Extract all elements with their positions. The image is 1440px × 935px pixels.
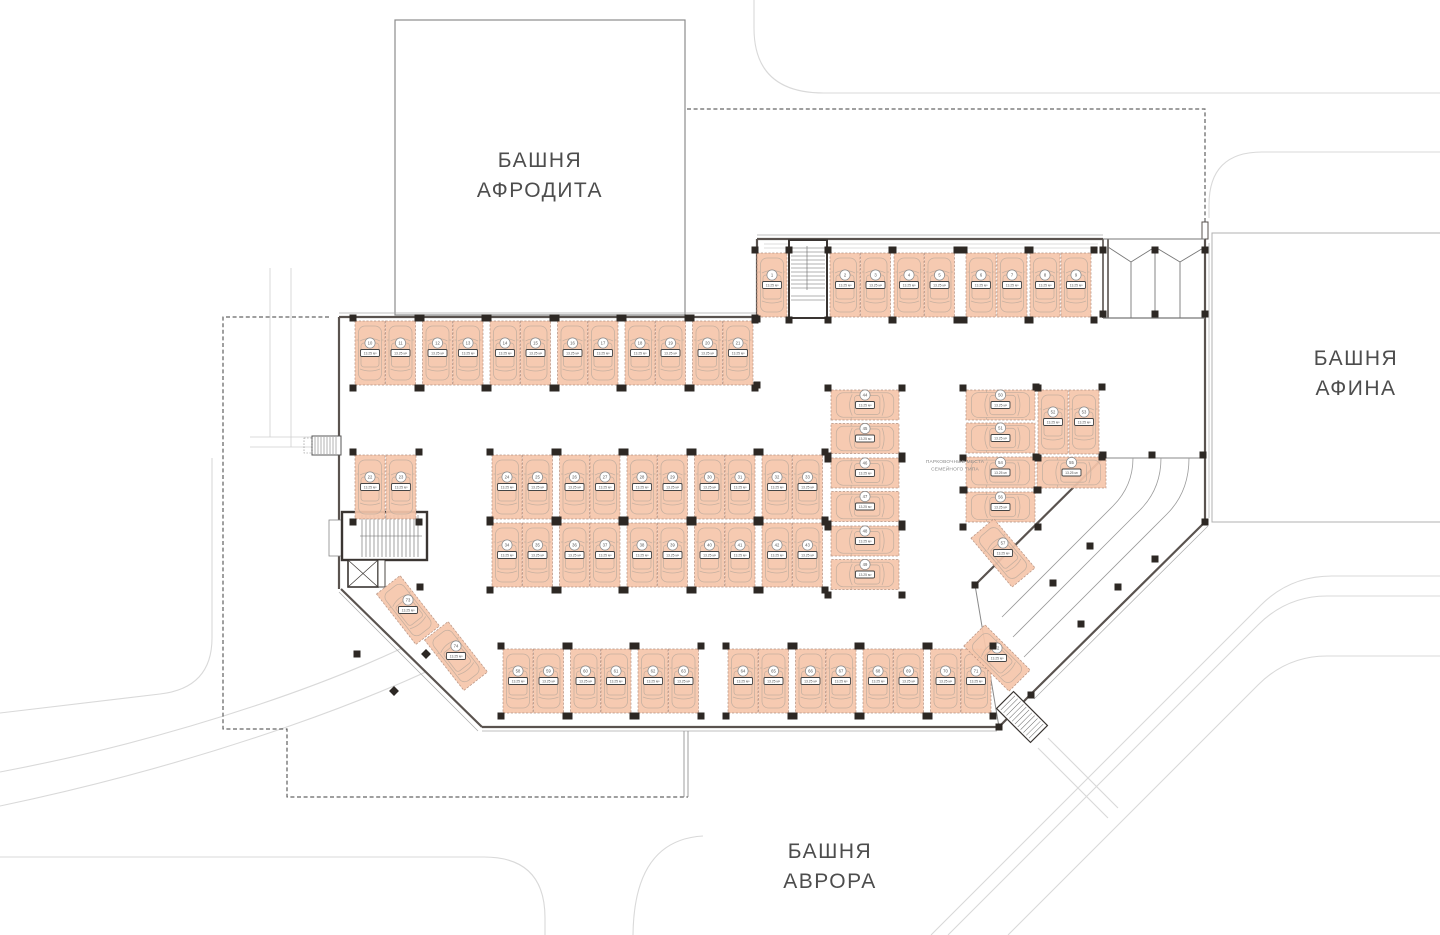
road-top xyxy=(754,0,1440,93)
structural-column xyxy=(825,317,832,324)
structural-column xyxy=(1025,317,1032,324)
stall-area-label: 13.25 м² xyxy=(975,284,989,288)
stall-area-label: 13.25 м² xyxy=(734,554,748,558)
stall-number: 46 xyxy=(863,460,868,465)
stall-area-label: 13.25 м² xyxy=(579,680,593,684)
structural-column xyxy=(1100,247,1107,254)
structural-column xyxy=(754,316,761,323)
parking-stall: 213.25 м² xyxy=(830,253,860,317)
structural-column xyxy=(996,724,1003,731)
parking-stall: 1513.25 м² xyxy=(521,321,551,385)
stall-area-label: 13.25 м² xyxy=(1039,284,1053,288)
stall-number: 38 xyxy=(640,542,645,547)
structural-column xyxy=(698,713,705,720)
parking-stall: 5013.25 м² xyxy=(966,390,1035,420)
stair-west-small xyxy=(304,436,341,455)
stall-number: 23 xyxy=(399,474,404,479)
stall-number: 70 xyxy=(943,668,948,673)
stall-area-label: 13.25 м² xyxy=(647,680,661,684)
structural-column xyxy=(1087,543,1094,550)
stall-area-label: 13.25 м² xyxy=(1065,471,1079,475)
stall-number: 13 xyxy=(466,340,471,345)
stall-area-label: 13.25 м² xyxy=(501,486,515,490)
stall-area-label: 13.25 м² xyxy=(734,486,748,490)
structural-column xyxy=(1149,452,1156,459)
stall-area-label: 13.25 м² xyxy=(970,680,984,684)
stall-area-label: 13.25 м² xyxy=(771,486,785,490)
stall-number: 43 xyxy=(805,542,810,547)
stall-number: 42 xyxy=(775,542,780,547)
parking-stall: 7013.25 м² xyxy=(931,649,961,713)
structural-column xyxy=(825,247,832,254)
structural-column xyxy=(961,487,968,494)
stall-number: 31 xyxy=(738,474,743,479)
parking-stall: 5613.25 м² xyxy=(966,492,1035,522)
parking-stall: 2013.25 м² xyxy=(693,321,723,385)
stall-area-label: 13.25 м² xyxy=(529,352,543,356)
stall-area-label: 13.25 м² xyxy=(636,486,650,490)
parking-stall: 3813.25 м² xyxy=(627,523,657,587)
parking-stall: 5813.25 м² xyxy=(503,649,533,713)
structural-column xyxy=(485,315,492,322)
stall-number: 53 xyxy=(1082,409,1087,414)
stall-area-label: 13.25 м² xyxy=(994,404,1008,408)
stall-area-label: 13.25 м² xyxy=(636,554,650,558)
stair-north-wing xyxy=(789,240,827,318)
structural-column xyxy=(899,385,906,392)
parking-stall: 2213.25 м² xyxy=(355,455,385,519)
structural-column xyxy=(350,519,357,526)
stall-number: 34 xyxy=(505,542,510,547)
stall-number: 66 xyxy=(808,668,813,673)
structural-column xyxy=(899,453,906,460)
structural-column xyxy=(622,449,629,456)
parking-stall: 1213.25 м² xyxy=(423,321,453,385)
stall-number: 26 xyxy=(572,474,577,479)
parking-stall: 3213.25 м² xyxy=(762,455,792,519)
stall-number: 56 xyxy=(998,494,1003,499)
structural-column xyxy=(757,449,764,456)
stall-area-label: 13.25 м² xyxy=(531,486,545,490)
stall-area-label: 13.25 м² xyxy=(939,680,953,684)
structural-column xyxy=(1152,247,1159,254)
stall-area-label: 13.25 м² xyxy=(859,404,873,408)
parking-stall: 4113.25 м² xyxy=(725,523,755,587)
stall-area-label: 13.25 м² xyxy=(994,437,1008,441)
structural-column xyxy=(1115,584,1122,591)
structural-column xyxy=(418,385,425,392)
stall-number: 28 xyxy=(640,474,645,479)
stall-number: 36 xyxy=(572,542,577,547)
stall-number: 22 xyxy=(368,474,373,479)
stall-number: 60 xyxy=(583,668,588,673)
road-exit-se-2 xyxy=(1048,738,1118,808)
parking-stall: 2613.25 м² xyxy=(560,455,590,519)
parking-stall: 2513.25 м² xyxy=(523,455,553,519)
stall-area-label: 13.25 м² xyxy=(664,352,678,356)
structural-column xyxy=(1091,317,1098,324)
stall-area-label: 13.25 м² xyxy=(364,486,378,490)
stall-area-label: 13.25 м² xyxy=(869,284,883,288)
stall-area-label: 13.25 м² xyxy=(859,437,873,441)
structural-column xyxy=(566,713,573,720)
structural-column xyxy=(485,385,492,392)
stall-number: 71 xyxy=(974,668,979,673)
stall-number: 17 xyxy=(601,340,606,345)
parking-stall: 1013.25 м² xyxy=(355,321,385,385)
parking-stall: 1613.25 м² xyxy=(558,321,588,385)
parking-stall: 2113.25 м² xyxy=(723,321,753,385)
tower-label-aurora: БАШНЯ АВРОРА xyxy=(783,840,877,893)
structural-column xyxy=(990,643,997,650)
stall-area-label: 13.25 м² xyxy=(701,352,715,356)
stall-area-label: 13.25 м² xyxy=(737,680,751,684)
structural-column xyxy=(1035,524,1042,531)
stall-number: 14 xyxy=(503,340,508,345)
parking-stall: 4413.25 м² xyxy=(831,390,899,420)
floor-plan-drawing: 113.25 м²213.25 м²313.25 м²413.25 м²513.… xyxy=(0,0,1440,935)
parking-stall: 913.25 м² xyxy=(1061,253,1091,317)
stall-number: 40 xyxy=(707,542,712,547)
structural-column xyxy=(633,713,640,720)
stall-area-label: 13.25 м² xyxy=(364,352,378,356)
parking-stall: 3413.25 м² xyxy=(492,523,522,587)
parking-stall: 3013.25 м² xyxy=(695,455,725,519)
parking-stall: 4613.25 м² xyxy=(831,458,899,488)
structural-column xyxy=(1078,621,1085,628)
stall-area-label: 13.25 м² xyxy=(991,657,1005,661)
structural-column xyxy=(622,517,629,524)
structural-column xyxy=(555,587,562,594)
structural-column xyxy=(555,449,562,456)
stall-area-label: 13.25 м² xyxy=(531,554,545,558)
stall-area-label: 13.25 м² xyxy=(512,680,526,684)
gate-jamb xyxy=(1202,222,1208,239)
stall-number: 12 xyxy=(435,340,440,345)
structural-column xyxy=(786,317,793,324)
parking-stall: 4213.25 м² xyxy=(762,523,792,587)
parking-stall: 6413.25 м² xyxy=(728,649,758,713)
stall-area-label: 13.25 м² xyxy=(1006,284,1020,288)
stall-number: 10 xyxy=(368,340,373,345)
structural-column xyxy=(1200,452,1207,459)
parking-stall: 2813.25 м² xyxy=(627,455,657,519)
parking-stall: 6813.25 м² xyxy=(863,649,893,713)
structural-column xyxy=(723,643,730,650)
road-left-1 xyxy=(0,458,212,713)
structural-column xyxy=(786,247,793,254)
structural-column xyxy=(954,247,961,254)
parking-stall: 313.25 м² xyxy=(861,253,891,317)
stall-number: 68 xyxy=(876,668,881,673)
parking-stall: 6313.25 м² xyxy=(669,649,699,713)
stall-number: 33 xyxy=(805,474,810,479)
tower-label-aurora-line2: АВРОРА xyxy=(783,870,877,893)
parking-stall: 6113.25 м² xyxy=(601,649,631,713)
structural-column xyxy=(1202,519,1209,526)
stall-number: 50 xyxy=(998,392,1003,397)
structural-column xyxy=(926,713,933,720)
road-left-2 xyxy=(0,622,452,772)
structural-column xyxy=(1202,311,1209,318)
road-bottom-left-1 xyxy=(0,857,545,935)
parking-stall: 5513.25 м² xyxy=(1037,457,1106,488)
structural-column xyxy=(825,453,832,460)
stall-number: 63 xyxy=(681,668,686,673)
structural-column xyxy=(633,643,640,650)
stall-number: 16 xyxy=(570,340,575,345)
south-yard-wall xyxy=(684,731,688,797)
structural-column xyxy=(858,713,865,720)
structural-column xyxy=(752,247,759,254)
structural-column xyxy=(1050,580,1057,587)
stall-number: 18 xyxy=(638,340,643,345)
parking-stall: 6013.25 м² xyxy=(571,649,601,713)
structural-column xyxy=(1152,311,1159,318)
structural-column xyxy=(416,449,423,456)
structural-column xyxy=(899,592,906,599)
stall-number: 32 xyxy=(775,474,780,479)
parking-stall: 1813.25 м² xyxy=(625,321,655,385)
structural-column xyxy=(688,385,695,392)
stall-number: 51 xyxy=(998,425,1003,430)
parking-stall: 1313.25 м² xyxy=(453,321,483,385)
stall-number: 69 xyxy=(906,668,911,673)
parking-stall: 5313.25 м² xyxy=(1069,390,1099,454)
parking-stall: 6513.25 м² xyxy=(759,649,789,713)
stall-number: 27 xyxy=(603,474,608,479)
structural-column xyxy=(698,643,705,650)
structural-column xyxy=(350,315,357,322)
structural-column xyxy=(1034,487,1041,494)
stall-area-label: 13.25 м² xyxy=(666,486,680,490)
parking-stall: 5213.25 м² xyxy=(1038,390,1068,454)
structural-column xyxy=(690,587,697,594)
stall-area-label: 13.25 м² xyxy=(599,486,613,490)
structural-column xyxy=(498,713,505,720)
stall-number: 64 xyxy=(741,668,746,673)
stall-number: 61 xyxy=(614,668,619,673)
stall-number: 21 xyxy=(736,340,741,345)
structural-column xyxy=(620,315,627,322)
structural-column xyxy=(1091,247,1098,254)
stall-area-label: 13.25 м² xyxy=(597,352,611,356)
parking-stall: 5113.25 м² xyxy=(966,423,1035,453)
stall-number: 39 xyxy=(670,542,675,547)
stall-area-label: 13.25 м² xyxy=(859,472,873,476)
stall-area-label: 13.25 м² xyxy=(394,352,408,356)
structural-column xyxy=(553,385,560,392)
structural-column xyxy=(417,584,424,591)
structural-column xyxy=(350,385,357,392)
structural-column xyxy=(990,713,997,720)
parking-stall: 3113.25 м² xyxy=(725,455,755,519)
structural-column xyxy=(354,651,361,658)
structural-column xyxy=(825,592,832,599)
stall-area-label: 13.25 м² xyxy=(859,573,873,577)
stall-area-label: 13.25 м² xyxy=(1078,421,1092,425)
stall-area-label: 13.25 м² xyxy=(395,486,409,490)
stall-area-label: 13.25 м² xyxy=(767,680,781,684)
stall-number: 29 xyxy=(670,474,675,479)
road-bottom-left-2 xyxy=(633,836,703,935)
structural-column xyxy=(723,713,730,720)
stall-area-label: 13.25 м² xyxy=(462,352,476,356)
stall-number: 37 xyxy=(603,542,608,547)
structural-column xyxy=(620,385,627,392)
parking-stall: 813.25 м² xyxy=(1030,253,1060,317)
parking-stall: 2713.25 м² xyxy=(590,455,620,519)
stall-number: 44 xyxy=(863,392,868,397)
stall-area-label: 13.25 м² xyxy=(501,554,515,558)
structural-column xyxy=(622,587,629,594)
parking-stall: 5913.25 м² xyxy=(534,649,564,713)
stall-area-label: 13.25 м² xyxy=(566,352,580,356)
tower-label-aphrodite-line1: БАШНЯ xyxy=(498,149,582,172)
parking-stall: 6713.25 м² xyxy=(826,649,856,713)
stall-area-label: 13.25 м² xyxy=(839,284,853,288)
structural-column xyxy=(889,317,896,324)
structural-column xyxy=(487,517,494,524)
stall-number: 54 xyxy=(998,460,1003,465)
parking-stall: 4713.25 м² xyxy=(831,491,899,521)
stall-area-label: 13.25 м² xyxy=(568,486,582,490)
parking-stall: 413.25 м² xyxy=(894,253,924,317)
structural-column xyxy=(889,247,896,254)
stall-number: 59 xyxy=(546,668,551,673)
stall-area-label: 13.25 м² xyxy=(402,609,416,613)
structural-column xyxy=(791,643,798,650)
stall-number: 73 xyxy=(406,597,411,602)
road-bottom-right-3 xyxy=(1008,656,1440,935)
stall-area-label: 13.25 м² xyxy=(1070,284,1084,288)
stall-area-label: 13.25 м² xyxy=(599,554,613,558)
parking-stall: 6613.25 м² xyxy=(796,649,826,713)
stall-number: 35 xyxy=(535,542,540,547)
structural-column xyxy=(1202,247,1209,254)
stall-area-label: 13.25 м² xyxy=(859,505,873,509)
stall-number: 19 xyxy=(668,340,673,345)
structural-column xyxy=(418,315,425,322)
structural-column xyxy=(972,582,979,589)
stall-number: 48 xyxy=(863,528,868,533)
structural-column xyxy=(960,524,967,531)
stall-number: 62 xyxy=(651,668,656,673)
stall-area-label: 13.25 м² xyxy=(431,352,445,356)
parking-stall: 1913.25 м² xyxy=(656,321,686,385)
stall-number: 57 xyxy=(1001,540,1006,545)
structural-column xyxy=(825,385,832,392)
structural-column xyxy=(757,587,764,594)
structural-column xyxy=(961,317,968,324)
structural-column xyxy=(899,521,906,528)
stall-area-label: 13.25 м² xyxy=(872,680,886,684)
tower-label-athena-line2: АФИНА xyxy=(1315,377,1396,400)
stall-area-label: 13.25 м² xyxy=(997,552,1011,556)
structural-column xyxy=(487,449,494,456)
stall-area-label: 13.25 м² xyxy=(902,680,916,684)
structural-column xyxy=(754,382,761,389)
stall-area-label: 13.25 м² xyxy=(568,554,582,558)
structural-column xyxy=(1025,247,1032,254)
stall-area-label: 13.25 м² xyxy=(804,680,818,684)
tower-label-aphrodite-line2: АФРОДИТА xyxy=(477,179,603,202)
stall-area-label: 13.25 м² xyxy=(771,554,785,558)
stall-number: 55 xyxy=(1069,460,1074,465)
stall-number: 25 xyxy=(535,474,540,479)
structural-column xyxy=(825,521,832,528)
structural-column xyxy=(858,643,865,650)
structural-column xyxy=(1100,311,1107,318)
parking-stall: 4013.25 м² xyxy=(695,523,725,587)
structural-column xyxy=(1033,384,1040,391)
stall-area-label: 13.25 м² xyxy=(677,680,691,684)
parking-stall: 613.25 м² xyxy=(966,253,996,317)
parking-stall: 1113.25 м² xyxy=(386,321,416,385)
parking-stall: 2413.25 м² xyxy=(492,455,522,519)
tower-label-aurora-line1: БАШНЯ xyxy=(788,840,872,863)
structural-column xyxy=(1099,384,1106,391)
structural-column xyxy=(690,449,697,456)
road-exit-se-1 xyxy=(1038,748,1108,818)
floor-plan-canvas: 113.25 м²213.25 м²313.25 м²413.25 м²513.… xyxy=(0,0,1440,935)
stall-number: 74 xyxy=(454,643,459,648)
stall-area-label: 13.25 м² xyxy=(766,284,780,288)
structural-column xyxy=(690,517,697,524)
stall-area-label: 13.25 м² xyxy=(1047,421,1061,425)
stall-area-label: 13.25 м² xyxy=(666,554,680,558)
stair-small-door xyxy=(304,438,312,453)
structural-column xyxy=(1100,452,1107,459)
structural-column xyxy=(688,315,695,322)
structural-column xyxy=(416,519,423,526)
parking-stall: 3613.25 м² xyxy=(560,523,590,587)
structural-column xyxy=(498,643,505,650)
structural-column xyxy=(961,247,968,254)
tower-label-athena-line1: БАШНЯ xyxy=(1314,347,1398,370)
parking-stall: 6213.25 м² xyxy=(638,649,668,713)
stall-number: 67 xyxy=(839,668,844,673)
stall-number: 24 xyxy=(505,474,510,479)
parking-stall: 2913.25 м² xyxy=(658,455,688,519)
structural-column xyxy=(1152,556,1159,563)
parking-stall: 4513.25 м² xyxy=(831,423,899,453)
stall-number: 20 xyxy=(705,340,710,345)
stall-number: 58 xyxy=(516,668,521,673)
family-parking-note-line1: ПАРКОВОЧНЫЕ МЕСТА xyxy=(926,459,985,465)
structural-column xyxy=(1028,692,1035,699)
parking-stall: 713.25 м² xyxy=(997,253,1027,317)
parking-stall: 3913.25 м² xyxy=(658,523,688,587)
structural-column xyxy=(954,317,961,324)
structural-column xyxy=(926,643,933,650)
structural-column xyxy=(1033,454,1040,461)
stall-area-label: 13.25 м² xyxy=(835,680,849,684)
stall-area-label: 13.25 м² xyxy=(610,680,624,684)
structural-column xyxy=(553,315,560,322)
stall-area-label: 13.25 м² xyxy=(703,486,717,490)
stall-number: 47 xyxy=(863,494,868,499)
stall-area-label: 13.25 м² xyxy=(634,352,648,356)
parking-stall: 113.25 м² xyxy=(757,253,787,317)
stall-area-label: 13.25 м² xyxy=(994,506,1008,510)
stall-area-label: 13.25 м² xyxy=(450,655,464,659)
parking-stall: 3313.25 м² xyxy=(793,455,823,519)
stall-area-label: 13.25 м² xyxy=(859,540,873,544)
parking-stall: 4813.25 м² xyxy=(831,526,899,556)
shaft-side xyxy=(378,560,385,587)
structural-column xyxy=(350,449,357,456)
